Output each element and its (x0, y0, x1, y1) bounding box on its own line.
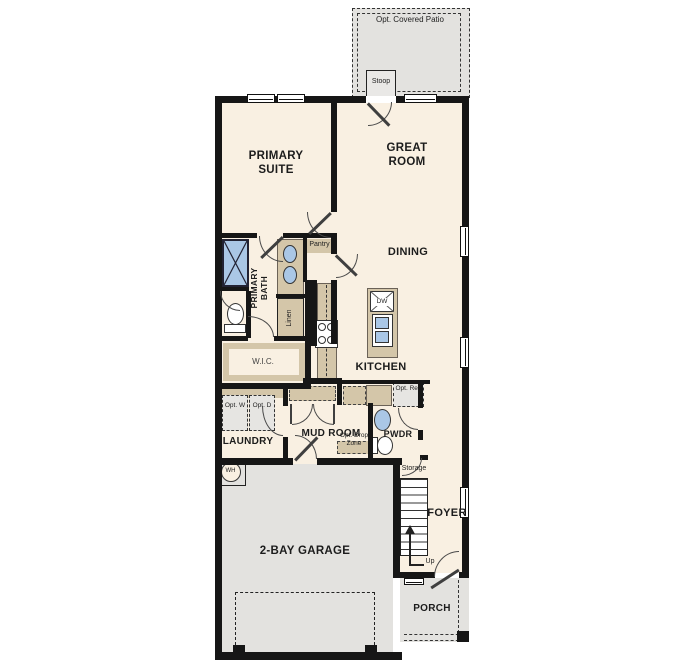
garage-label: 2-BAY GARAGE (258, 545, 352, 559)
island-sink (372, 314, 393, 347)
garage-door-outline (235, 592, 375, 650)
up-label: Up (421, 558, 439, 566)
stairs-arrow-head (405, 525, 415, 534)
mud-room-label: MUD ROOM (298, 428, 364, 440)
vanity-sink (283, 245, 297, 263)
porch-post (457, 631, 469, 642)
wall-powder-right-upper (418, 384, 423, 408)
wall-vanity-linen (276, 294, 306, 298)
porch-dashed-bottom (404, 634, 464, 635)
opt-covered-patio-label: Opt. Covered Patio (362, 15, 458, 24)
linen-label: Linen (286, 299, 294, 337)
foyer-label: FOYER (426, 507, 468, 520)
burner (318, 323, 326, 331)
porch-label: PORCH (407, 603, 457, 615)
wall-laundry-mud-upper (283, 388, 288, 406)
wall-foyer-bottom-right (459, 572, 469, 578)
water-heater-label: WH (222, 468, 239, 475)
storage-label: Storage (396, 465, 432, 473)
dishwasher-label: DW (371, 298, 393, 306)
mud-double-door-leaf (290, 404, 292, 424)
primary-suite-label: PRIMARY SUITE (238, 150, 314, 177)
opt-washer-box (222, 395, 248, 431)
window (460, 226, 469, 257)
wall-powder-right-lower (418, 430, 423, 440)
primary-bath-label: PRIMARY BATH (249, 263, 269, 313)
powder-label: PWDR (380, 429, 416, 440)
garage-pier-right (365, 645, 377, 654)
stoop-label: Stoop (366, 78, 396, 86)
window (277, 94, 305, 103)
porch-dashed-right (458, 580, 459, 638)
wall-suite-bottom-left (215, 233, 257, 238)
wall-bath-bottom-left (215, 336, 248, 341)
powder-sink (374, 409, 391, 431)
dishwasher: DW (370, 291, 394, 312)
porch-dashed-bottom-2 (404, 640, 464, 641)
opt-washer-label: Opt. W (222, 402, 248, 410)
stairs (400, 478, 428, 556)
back-hall-cabinet (343, 386, 366, 405)
vanity-sink (283, 266, 297, 284)
wall-kitchen-bottom (303, 378, 340, 384)
wall-left (215, 96, 222, 660)
pantry-label: Pantry (303, 241, 336, 249)
toilet-tank (224, 324, 246, 333)
wall-pantry-right-lower (331, 280, 337, 344)
wall-garage-right (393, 458, 400, 578)
wall-powder-left (368, 403, 373, 458)
wall-garage-top-left (215, 458, 293, 465)
wall-back-hall (342, 380, 430, 384)
floor-plan: Opt. Covered Patio Stoop DW (0, 0, 687, 661)
window (404, 94, 437, 103)
shower (222, 239, 249, 287)
window (247, 94, 275, 103)
mud-double-door-leaf (333, 404, 335, 424)
laundry-label: LAUNDRY (217, 436, 279, 448)
stairs-arrow-stem (409, 534, 411, 566)
porch-sill (404, 578, 424, 585)
dining-label: DINING (378, 246, 438, 259)
wic-label: W.I.C. (238, 357, 288, 366)
sink-basin (375, 317, 389, 329)
garage-pier-left (233, 645, 245, 654)
wall-block (305, 280, 317, 346)
kitchen-label: KITCHEN (349, 361, 413, 374)
water-heater: WH (221, 462, 241, 482)
wall-wic-bottom (215, 383, 311, 389)
wall-laundry-mud-lower (283, 437, 288, 458)
great-room-label: GREAT ROOM (374, 142, 440, 169)
wall-garage-top-right (317, 458, 402, 465)
sink-basin (375, 331, 389, 343)
wall-suite-divider (331, 96, 337, 212)
window (460, 337, 469, 368)
burner (318, 336, 326, 344)
